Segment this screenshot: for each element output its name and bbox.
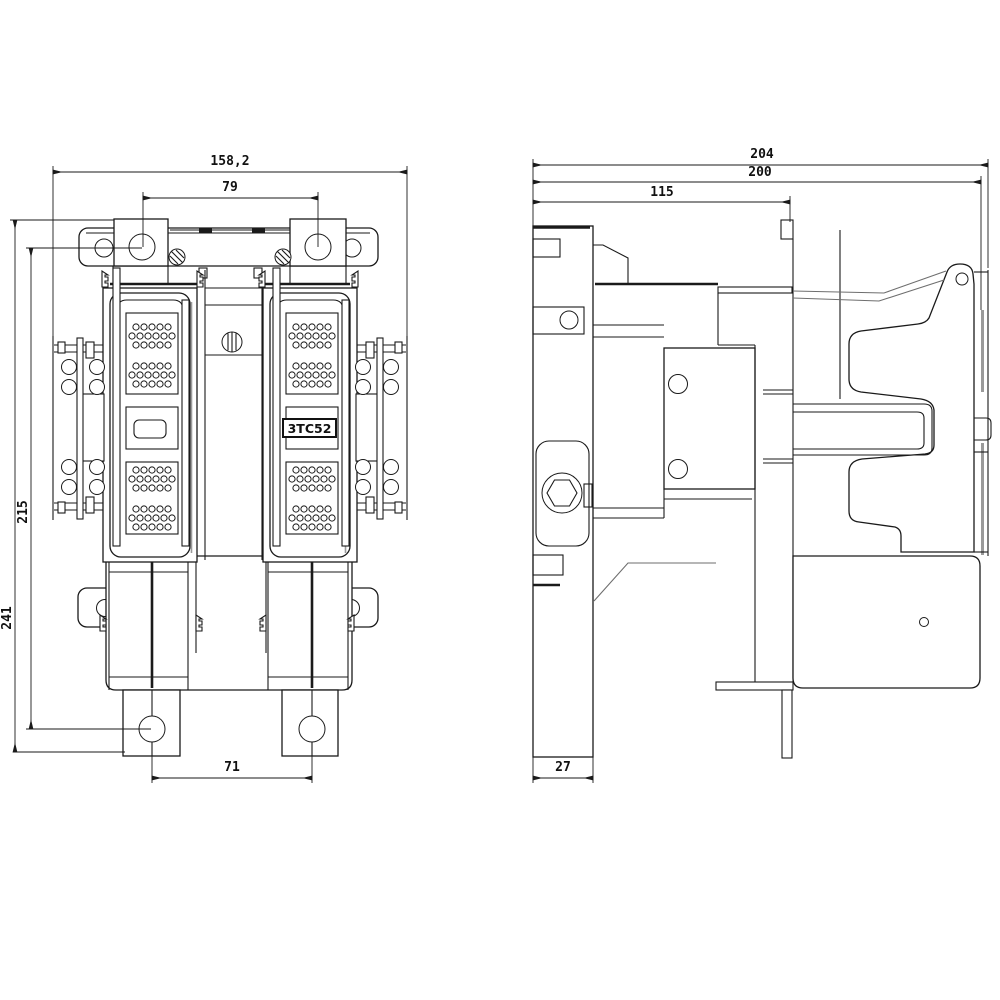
snap-clip-icon (102, 271, 108, 287)
center-screw-icon (222, 332, 242, 352)
snap-clip-icon (352, 271, 358, 287)
side-mounting-plate (533, 226, 593, 757)
dim-text-overall-width: 158,2 (210, 154, 249, 169)
side-bottom-plate (716, 682, 793, 758)
snap-clip-icon (197, 271, 203, 287)
snap-clip-icon (259, 271, 265, 287)
dim-text-rail-plate-depth: 27 (555, 760, 571, 775)
hex-bolt-icon (542, 473, 582, 513)
front-base (106, 556, 352, 690)
side-right-plates (974, 270, 991, 556)
side-lower-block (793, 556, 980, 688)
dim-text-front-section-depth: 115 (650, 185, 673, 200)
product-label: 3TC52 (288, 421, 332, 436)
side-contact-carrier (793, 264, 974, 552)
front-center-column (199, 268, 262, 560)
dim-text-overall-height: 241 (0, 606, 15, 630)
foot-hole-right (299, 716, 325, 742)
side-gray-linkage (594, 271, 946, 601)
front-view: 3TC52 (0, 154, 407, 783)
dim-text-mounting-hole-span: 215 (16, 500, 31, 523)
dim-text-foot-hole-spacing: 71 (224, 760, 240, 775)
top-hole-left (129, 234, 155, 260)
dim-text-top-hole-spacing: 79 (222, 180, 238, 195)
side-magnet-coil (593, 230, 840, 518)
dim-front-section-depth: 115 (533, 185, 790, 222)
dim-text-overall-depth: 204 (750, 147, 774, 162)
side-view: 204 200 115 27 (533, 147, 991, 783)
front-top-bracket (79, 219, 378, 284)
front-mounting-feet (123, 690, 338, 756)
carrier-ear-hole (956, 273, 968, 285)
screw-left-icon (169, 249, 185, 265)
dim-text-body-depth: 200 (748, 165, 772, 180)
drawing-canvas: 3TC52 (0, 0, 1000, 1000)
technical-drawing-page: 3TC52 (0, 0, 1000, 1000)
dim-rail-plate-depth: 27 (533, 757, 593, 783)
screw-right-icon (275, 249, 291, 265)
